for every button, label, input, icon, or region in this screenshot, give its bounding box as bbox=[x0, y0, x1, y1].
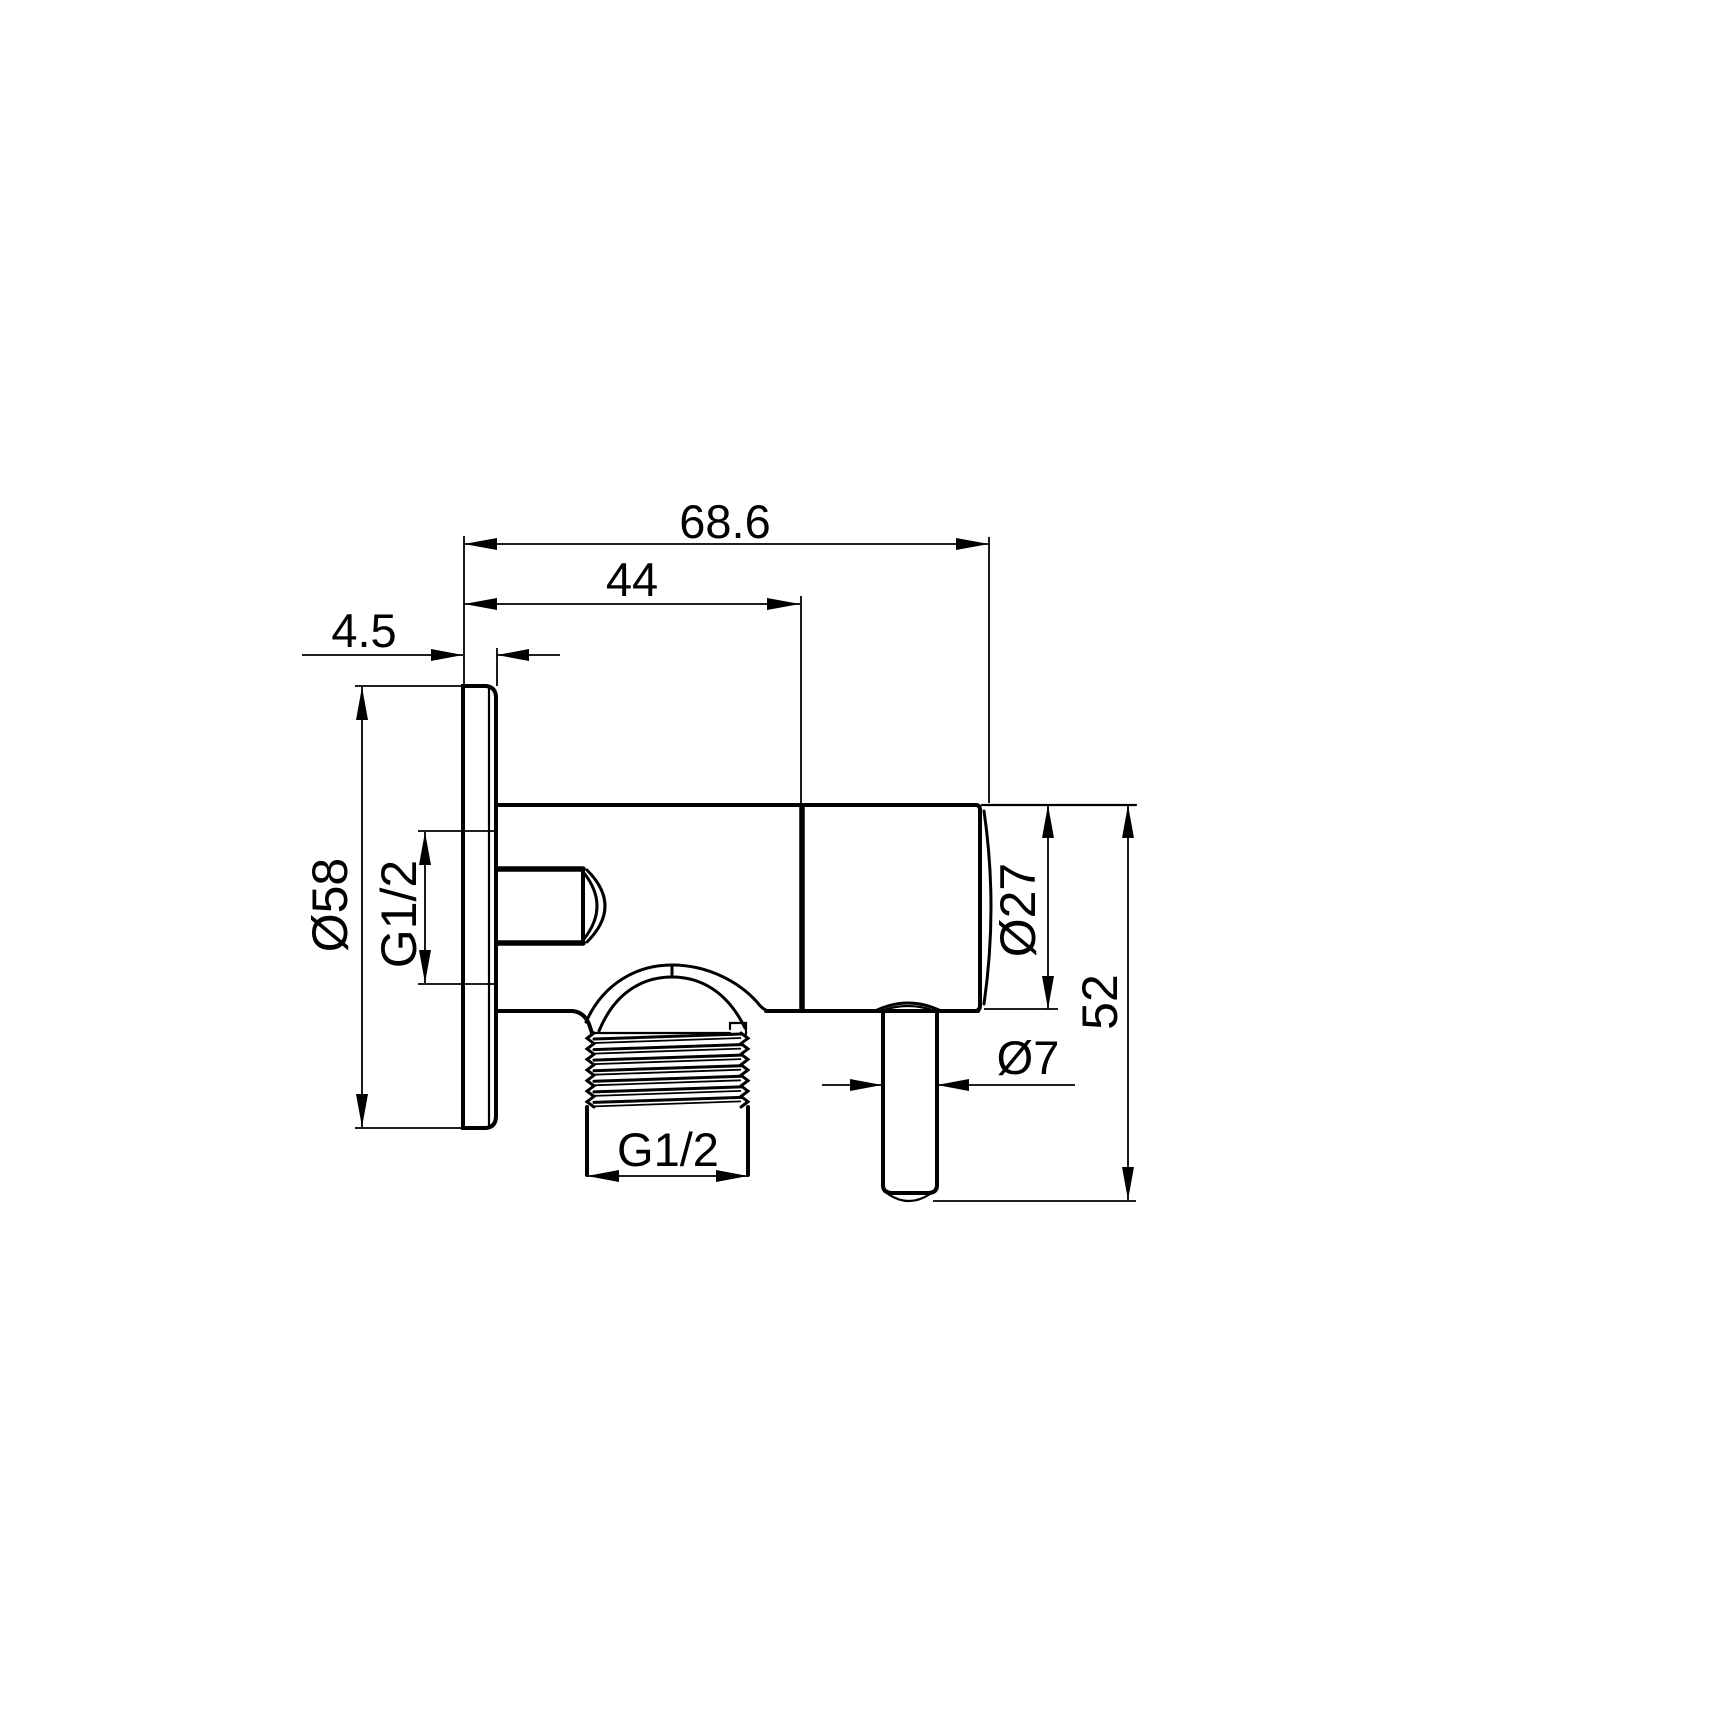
arrowhead bbox=[464, 538, 497, 550]
knob-face-edge bbox=[976, 805, 980, 1011]
arrowhead bbox=[587, 1170, 619, 1182]
dim-plate-diameter: Ø58 bbox=[302, 687, 368, 1127]
drawing-canvas: 68.6 44 4.5 Ø58 G1/2 Ø27 bbox=[0, 0, 1733, 1733]
dim-inlet-thread-label: G1/2 bbox=[371, 860, 427, 968]
arrowhead bbox=[1122, 1167, 1134, 1200]
arrowhead bbox=[431, 649, 463, 661]
arrowhead bbox=[356, 1094, 368, 1127]
pin-outline bbox=[883, 1011, 937, 1193]
dim-overall-height: 52 bbox=[1072, 805, 1134, 1200]
arrowhead bbox=[956, 538, 989, 550]
dim-knob-diameter-label: Ø27 bbox=[990, 863, 1046, 958]
arrowhead bbox=[767, 598, 800, 610]
dim-inlet-thread: G1/2 bbox=[371, 832, 431, 983]
dim-body-width: 44 bbox=[464, 553, 800, 610]
dim-knob-diameter: Ø27 bbox=[990, 805, 1054, 1009]
handle-pin bbox=[875, 1003, 941, 1201]
dim-pin-diameter: Ø7 bbox=[822, 1031, 1075, 1091]
arrowhead bbox=[464, 598, 497, 610]
arrowhead bbox=[1122, 805, 1134, 838]
dome-outer-arc bbox=[586, 965, 768, 1022]
arrowhead bbox=[716, 1170, 748, 1182]
dim-outlet-thread: G1/2 bbox=[587, 1123, 748, 1182]
dim-overall-height-label: 52 bbox=[1072, 974, 1128, 1030]
dim-plate-diameter-label: Ø58 bbox=[302, 858, 358, 953]
arrowhead bbox=[937, 1079, 969, 1091]
wall-plate bbox=[463, 686, 496, 1128]
wall-plate-outline bbox=[463, 686, 496, 1128]
dim-overall-width-label: 68.6 bbox=[679, 495, 770, 548]
dim-plate-thickness: 4.5 bbox=[302, 604, 560, 661]
arrowhead bbox=[850, 1079, 882, 1091]
control-knob bbox=[976, 805, 991, 1011]
arrowhead bbox=[356, 687, 368, 720]
valve-body bbox=[496, 805, 978, 1033]
body-bottom-left-edge bbox=[496, 1011, 592, 1033]
dim-overall-width: 68.6 bbox=[464, 495, 989, 550]
dim-outlet-thread-label: G1/2 bbox=[617, 1123, 719, 1176]
dim-plate-thickness-label: 4.5 bbox=[331, 604, 396, 657]
inlet-stub-cap-inner bbox=[584, 873, 597, 939]
arrowhead bbox=[1042, 976, 1054, 1009]
technical-drawing: 68.6 44 4.5 Ø58 G1/2 Ø27 bbox=[0, 0, 1733, 1733]
pin-bottom-dome bbox=[888, 1194, 930, 1201]
outlet-dome bbox=[586, 965, 768, 1031]
inlet-stub bbox=[497, 869, 605, 943]
dim-body-width-label: 44 bbox=[606, 553, 658, 606]
dome-inner-arc bbox=[599, 977, 745, 1031]
dim-pin-diameter-label: Ø7 bbox=[997, 1031, 1060, 1084]
arrowhead bbox=[497, 649, 529, 661]
arrowhead bbox=[1042, 805, 1054, 838]
